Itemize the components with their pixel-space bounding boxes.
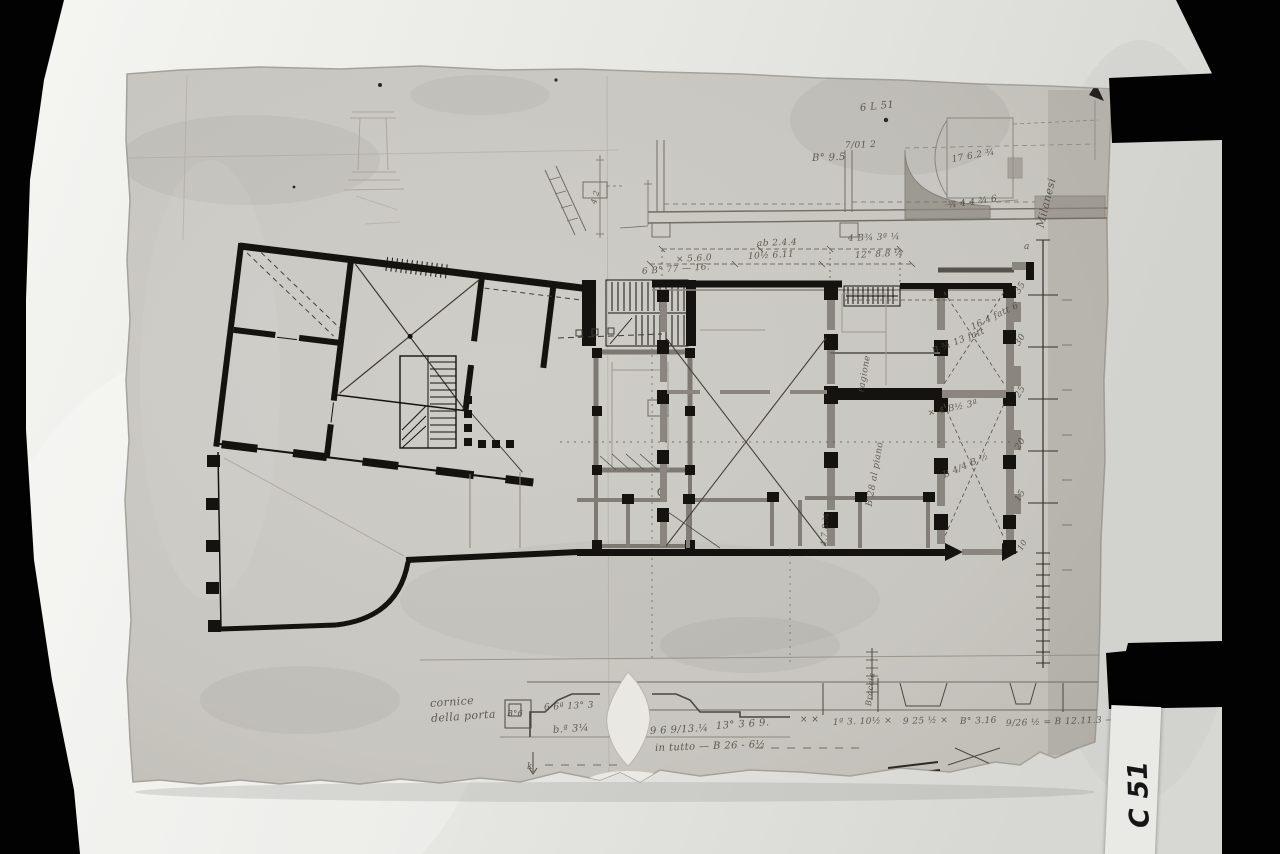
- floor-plan-photograph: [0, 0, 1280, 854]
- sheet-shadow: [135, 782, 1095, 802]
- archival-photo-frame: Milanesia3530252015106 L 517/01 2B° 9.51…: [0, 0, 1280, 854]
- top-clip: [1109, 73, 1222, 143]
- right-black-bar: [1222, 0, 1280, 854]
